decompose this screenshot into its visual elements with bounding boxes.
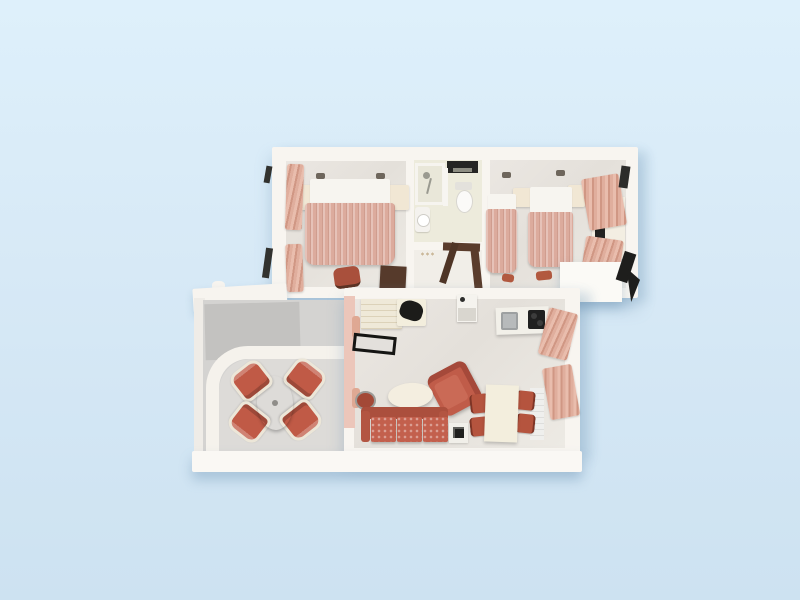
armchair-cushion xyxy=(433,373,469,410)
stove-burner-a xyxy=(531,313,537,319)
kitchen-sink xyxy=(501,312,518,330)
dining-chair-4 xyxy=(515,413,536,434)
stove-burner-b xyxy=(537,320,543,326)
mini-bar-front xyxy=(458,308,476,321)
pouf-top xyxy=(357,393,374,408)
sofa-seat-2 xyxy=(397,417,422,442)
kitchen-stove xyxy=(528,310,545,329)
dining-table xyxy=(484,384,519,442)
floor-plan-render xyxy=(0,0,800,600)
sofa-seat-3 xyxy=(423,417,448,442)
living-room xyxy=(0,0,800,600)
sofa-seat-1 xyxy=(371,417,396,442)
bottom-wall-band xyxy=(192,451,582,472)
mini-bar-tap xyxy=(460,297,465,302)
sofa-arm-left xyxy=(361,411,370,442)
staircase xyxy=(361,299,402,329)
sofa xyxy=(361,407,448,444)
side-table-device xyxy=(453,427,464,438)
